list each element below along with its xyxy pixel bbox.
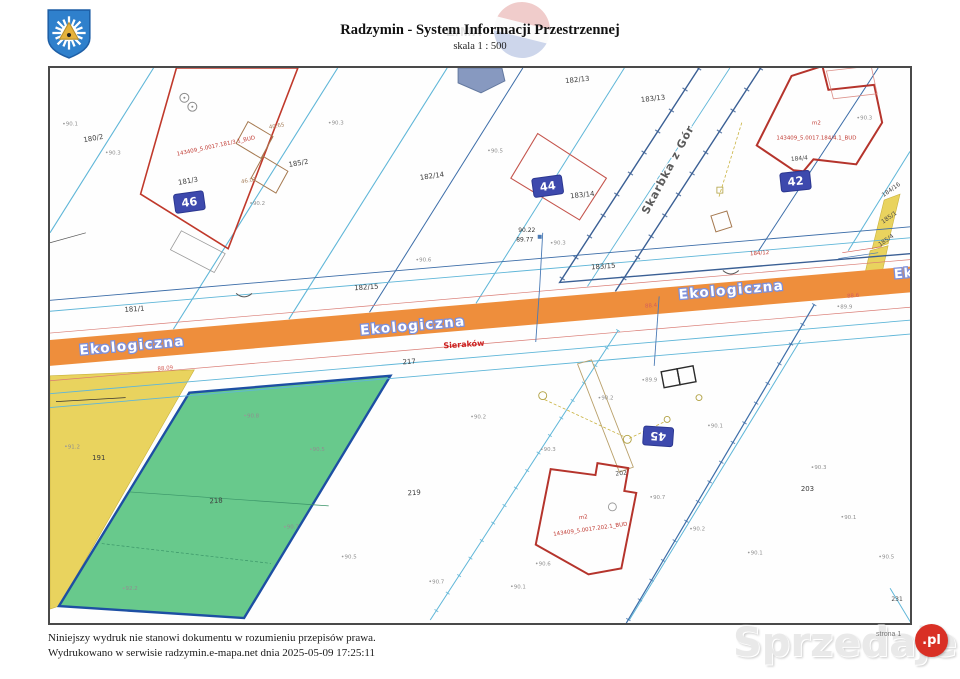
map-label-elev: 90.1	[66, 122, 78, 128]
map-label-streetdark: Skarbka z Gór	[639, 123, 697, 216]
parcel-annex-outline	[170, 231, 225, 273]
building-filled-blue	[458, 68, 505, 93]
map-label-parcel: 203	[801, 485, 814, 493]
map-label-elev: 90.3	[554, 241, 567, 247]
elevation-dot	[65, 445, 67, 447]
map-label-elev: 90.1	[751, 550, 763, 556]
map-label-elev: 90.5	[882, 554, 894, 560]
map-label-elev: 90.7	[287, 525, 299, 531]
map-label-elev: 90.3	[814, 465, 827, 471]
page-number: strona 1	[876, 631, 901, 638]
utility-circle	[608, 503, 616, 511]
elevation-dot	[488, 150, 490, 152]
map-label-dim: 46.07	[241, 177, 257, 186]
map-label-parcelsm: 202	[615, 469, 627, 477]
elevation-dot	[429, 580, 431, 582]
map-label-parcel: 181/1	[124, 305, 145, 314]
map-label-parcel: 219	[407, 488, 421, 497]
map-label-elev: 90.3	[332, 121, 345, 127]
map-label-parcel: 217	[402, 357, 416, 366]
parcel-outline-red-181-3	[141, 68, 298, 249]
map-label-elev: 90.2	[474, 414, 486, 420]
radzymin-coat-of-arms	[46, 8, 92, 60]
utility-circles	[539, 392, 702, 444]
map-frame: EkologicznaEkologicznaEkologicznaEkSkarb…	[48, 66, 912, 625]
map-label-elev: 90.5	[491, 148, 503, 154]
gate-symbol	[723, 271, 739, 274]
elevation-dot	[511, 585, 513, 587]
elevation-dot	[329, 122, 331, 124]
utility-line	[536, 233, 543, 342]
plot-marker-46: 46	[173, 191, 205, 214]
utility-dot	[191, 106, 193, 108]
map-label-elev: 90.6	[419, 258, 432, 264]
map-label-parcel: 183/13	[640, 94, 665, 104]
elevation-dot	[244, 415, 246, 417]
map-label-dim: 40.65	[269, 122, 285, 131]
elevation-dot	[650, 496, 652, 498]
elevation-dot	[599, 397, 601, 399]
elevation-dot	[837, 305, 839, 307]
plot-marker-44: 44	[532, 175, 564, 198]
elevation-dot	[841, 516, 843, 518]
map-label-streetEk: Ek	[893, 266, 910, 283]
elevation-dot	[748, 552, 750, 554]
elevation-dot	[284, 526, 286, 528]
map-label-elev: 90.2	[693, 527, 705, 533]
utility-dot	[183, 97, 185, 99]
elevation-dot	[812, 466, 814, 468]
map-label-elev: 90.7	[432, 579, 444, 585]
map-label-elev: 90.1	[844, 515, 856, 521]
map-label-elev: 89.9	[840, 304, 853, 310]
driveway-outline	[578, 360, 634, 472]
map-label-redcode: m2	[812, 121, 821, 127]
map-label-elev: 90.3	[860, 116, 873, 122]
plot-marker-number: 45	[650, 429, 667, 444]
map-label-elev: 89.9	[645, 378, 658, 384]
map-label-redplace: Sieraków	[443, 338, 485, 351]
map-label-redcode: 143409_5.0017.184/4.1_BUD	[776, 135, 856, 141]
elevation-dot	[708, 425, 710, 427]
map-label-parcel: 183/14	[570, 190, 596, 201]
map-label-parcel: 182/14	[419, 170, 445, 181]
map-label-elev: 90.1	[711, 423, 723, 429]
map-label-reddim: 88.4	[645, 303, 658, 310]
map-label-parcelsm: 231	[891, 596, 903, 603]
elevation-dot	[416, 259, 418, 261]
map-label-parcel: 218	[209, 496, 223, 505]
footer-disclaimer: Niniejszy wydruk nie stanowi dokumentu w…	[48, 631, 376, 661]
elevation-dot	[642, 379, 644, 381]
elevation-dot	[551, 242, 553, 244]
elevation-dot	[857, 117, 859, 119]
map-label-elev: 90.1	[514, 584, 526, 590]
map-scale: skala 1 : 500	[453, 41, 506, 52]
gas-line	[719, 123, 742, 197]
elevation-dot	[342, 556, 344, 558]
map-label-elev: 90.7	[653, 495, 665, 501]
map-label-parcel: 182/15	[354, 283, 379, 293]
utility-symbol	[717, 187, 723, 193]
print-page: E/MA Radzymin - System Informacji Przest…	[0, 0, 960, 679]
elevation-dot	[250, 202, 252, 204]
map-label-redcode: m2	[579, 514, 589, 521]
elevation-dot	[690, 528, 692, 530]
building-outline	[711, 211, 732, 232]
elevation-dot	[106, 151, 108, 153]
map-label-elev: 90.3	[109, 150, 122, 156]
map-label-parcelsm: 184/4	[791, 155, 809, 163]
plot-marker-42: 42	[780, 170, 812, 192]
map-label-parcel: 191	[92, 454, 105, 462]
map-label-parcel: 183/15	[591, 262, 616, 272]
map-label-reddim: 88.6	[847, 293, 860, 300]
elevation-dot	[310, 448, 312, 450]
map-label-redcode: 184/12	[750, 250, 770, 257]
building-annex-outline	[826, 68, 877, 99]
map-label-elev: 90.6	[539, 561, 552, 567]
elevation-dot	[879, 556, 881, 558]
map-label-parcel: 182/13	[565, 75, 590, 85]
utility-symbol	[538, 235, 542, 239]
map-label-blacksm: 89.77	[516, 237, 533, 244]
map-label-elev: 90.5	[345, 554, 357, 560]
elevation-dot	[123, 587, 125, 589]
disclaimer-line: Niniejszy wydruk nie stanowi dokumentu w…	[48, 631, 376, 646]
map-label-elev: 90.2	[253, 201, 265, 207]
print-info-line: Wydrukowano w serwisie radzymin.e-mapa.n…	[48, 646, 376, 661]
map-label-elev: 90.8	[247, 413, 260, 419]
map-label-redcode: 143409_5.0017.181/3.1_BUD	[176, 135, 256, 157]
building-outline-black	[677, 366, 696, 385]
elevation-dot	[541, 448, 543, 450]
street-skarbka-z-gor	[560, 68, 910, 291]
plot-marker-number: 46	[180, 194, 198, 210]
plot-marker-45: 45	[643, 426, 674, 447]
elevation-dot	[63, 123, 65, 125]
plot-marker-number: 42	[787, 173, 804, 189]
plot-marker-number: 44	[539, 178, 557, 194]
map-label-parcel: 185/2	[288, 158, 309, 169]
map-label-redcode: 143409_5.0017.202.1_BUD	[553, 522, 628, 538]
pl-badge: .pl	[915, 624, 948, 657]
map-label-elev: 90.2	[601, 396, 613, 402]
cadastral-map: EkologicznaEkologicznaEkologicznaEkSkarb…	[50, 68, 910, 623]
map-label-parcel: 181/3	[177, 176, 198, 187]
map-label-blacksm: 90.22	[518, 227, 535, 234]
map-label-elev: 90.5	[313, 447, 325, 453]
map-label-elev: 90.3	[544, 447, 557, 453]
elevation-dot	[536, 563, 538, 565]
map-label-parcel: 180/2	[83, 133, 104, 144]
page-title: Radzymin - System Informacji Przestrzenn…	[340, 22, 619, 39]
elevation-dot	[471, 416, 473, 418]
map-label-elev: 91.2	[68, 444, 80, 450]
map-label-elev: 92.2	[126, 586, 138, 592]
gas-line	[545, 400, 624, 437]
